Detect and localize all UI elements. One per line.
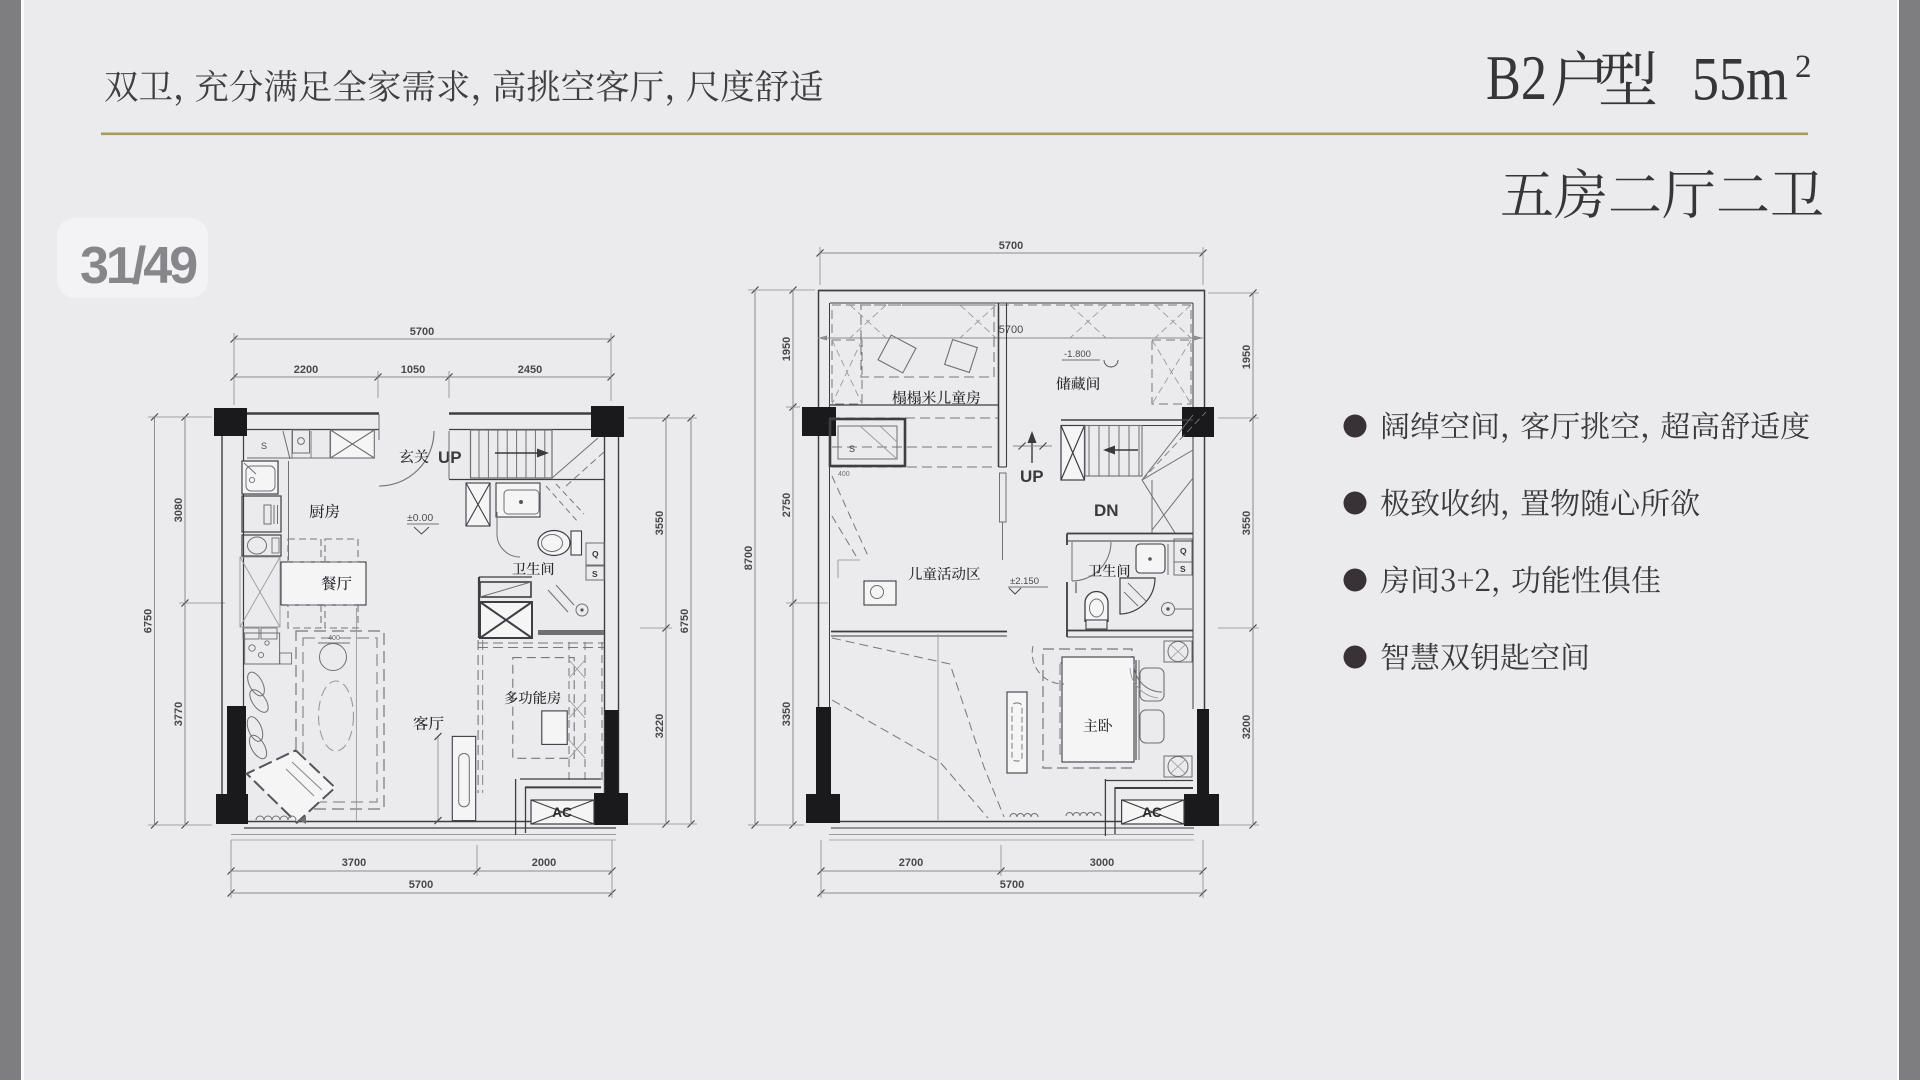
svg-text:3000: 3000 bbox=[1090, 857, 1114, 869]
svg-text:UP: UP bbox=[1020, 467, 1044, 486]
svg-text:6750: 6750 bbox=[143, 609, 155, 633]
svg-text:B2: B2 bbox=[1486, 42, 1547, 113]
svg-text:AC: AC bbox=[1142, 805, 1162, 820]
svg-text:S: S bbox=[1180, 564, 1186, 574]
svg-text:DN: DN bbox=[1094, 501, 1119, 520]
svg-text:8700: 8700 bbox=[743, 546, 755, 570]
svg-text:5700: 5700 bbox=[409, 879, 433, 891]
svg-text:2700: 2700 bbox=[899, 857, 923, 869]
svg-text:3550: 3550 bbox=[1241, 511, 1253, 535]
svg-text:S: S bbox=[592, 569, 598, 579]
svg-text:6750: 6750 bbox=[679, 609, 691, 633]
svg-text:3700: 3700 bbox=[342, 857, 366, 869]
svg-text:3200: 3200 bbox=[1241, 715, 1253, 739]
svg-text:400: 400 bbox=[838, 471, 850, 478]
svg-text:AC: AC bbox=[552, 805, 572, 820]
svg-text:3080: 3080 bbox=[173, 498, 185, 522]
svg-text:1950: 1950 bbox=[781, 337, 793, 361]
svg-text:-1.800: -1.800 bbox=[1064, 349, 1091, 360]
svg-text:2450: 2450 bbox=[518, 364, 542, 376]
svg-text:3350: 3350 bbox=[781, 702, 793, 726]
svg-text:UP: UP bbox=[438, 448, 462, 467]
svg-text:2000: 2000 bbox=[532, 857, 556, 869]
svg-text:5700: 5700 bbox=[999, 240, 1023, 252]
svg-text:5700: 5700 bbox=[410, 326, 434, 338]
svg-text:5700: 5700 bbox=[1000, 879, 1024, 891]
svg-text:55m: 55m bbox=[1692, 47, 1788, 114]
svg-text:1950: 1950 bbox=[1241, 345, 1253, 369]
svg-text:3550: 3550 bbox=[654, 511, 666, 535]
svg-text:2750: 2750 bbox=[781, 493, 793, 517]
svg-text:5700: 5700 bbox=[999, 324, 1023, 336]
svg-text:S: S bbox=[849, 444, 855, 454]
svg-text:Q: Q bbox=[1180, 546, 1187, 556]
svg-text:400: 400 bbox=[328, 635, 340, 642]
svg-text:2: 2 bbox=[1795, 49, 1812, 85]
svg-text:Q: Q bbox=[592, 549, 599, 559]
svg-text:2200: 2200 bbox=[294, 364, 318, 376]
svg-text:31/49: 31/49 bbox=[80, 237, 196, 295]
svg-text:1050: 1050 bbox=[401, 364, 425, 376]
svg-text:3770: 3770 bbox=[173, 702, 185, 726]
svg-text:3220: 3220 bbox=[654, 714, 666, 738]
svg-text:±0.00: ±0.00 bbox=[407, 512, 433, 524]
svg-text:S: S bbox=[261, 441, 267, 451]
svg-text:±2.150: ±2.150 bbox=[1010, 576, 1039, 587]
